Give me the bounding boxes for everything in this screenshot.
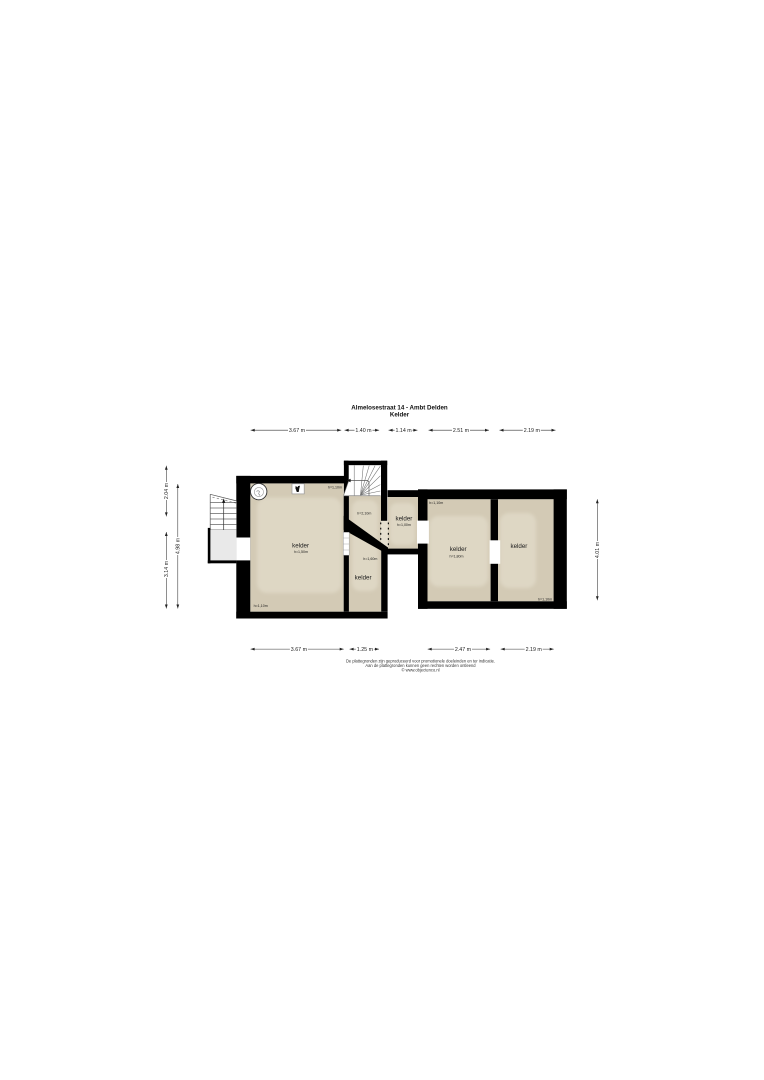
svg-text:Kelder: Kelder [390,411,410,418]
svg-text:h=1,80m: h=1,80m [449,554,463,558]
svg-text:2.19 m: 2.19 m [526,647,543,653]
svg-text:1.40 m: 1.40 m [355,428,372,434]
svg-text:2.47 m: 2.47 m [455,647,472,653]
svg-text:3.67 m: 3.67 m [289,428,306,434]
svg-text:1.14 m: 1.14 m [395,428,412,434]
svg-text:3.67 m: 3.67 m [291,647,308,653]
svg-text:h=1,10m: h=1,10m [538,598,552,602]
svg-text:kelder: kelder [292,543,309,550]
svg-text:4.98 m: 4.98 m [176,537,182,554]
svg-text:4.01 m: 4.01 m [595,541,601,558]
svg-text:h=2,10m: h=2,10m [357,511,371,515]
svg-text:kelder: kelder [395,516,412,523]
svg-text:h=1,60m: h=1,60m [363,557,377,561]
svg-text:h=1,10m: h=1,10m [254,604,268,608]
svg-text:2.19 m: 2.19 m [524,428,541,434]
svg-text:h=1,50m: h=1,50m [294,550,308,554]
svg-text:2.04 m: 2.04 m [164,482,170,499]
svg-text:1.25 m: 1.25 m [357,647,374,653]
svg-text:3.14 m: 3.14 m [164,560,170,577]
svg-text:h=1,10m: h=1,10m [328,485,342,489]
svg-text:kelder: kelder [510,543,527,550]
svg-text:kelder: kelder [355,574,372,581]
svg-text:kelder: kelder [450,546,467,553]
svg-text:h=1,10m: h=1,10m [429,501,443,505]
svg-text:2.51 m: 2.51 m [453,428,470,434]
svg-text:© www.objectenco.nl: © www.objectenco.nl [401,668,439,673]
svg-text:h=1,00m: h=1,00m [397,523,411,527]
